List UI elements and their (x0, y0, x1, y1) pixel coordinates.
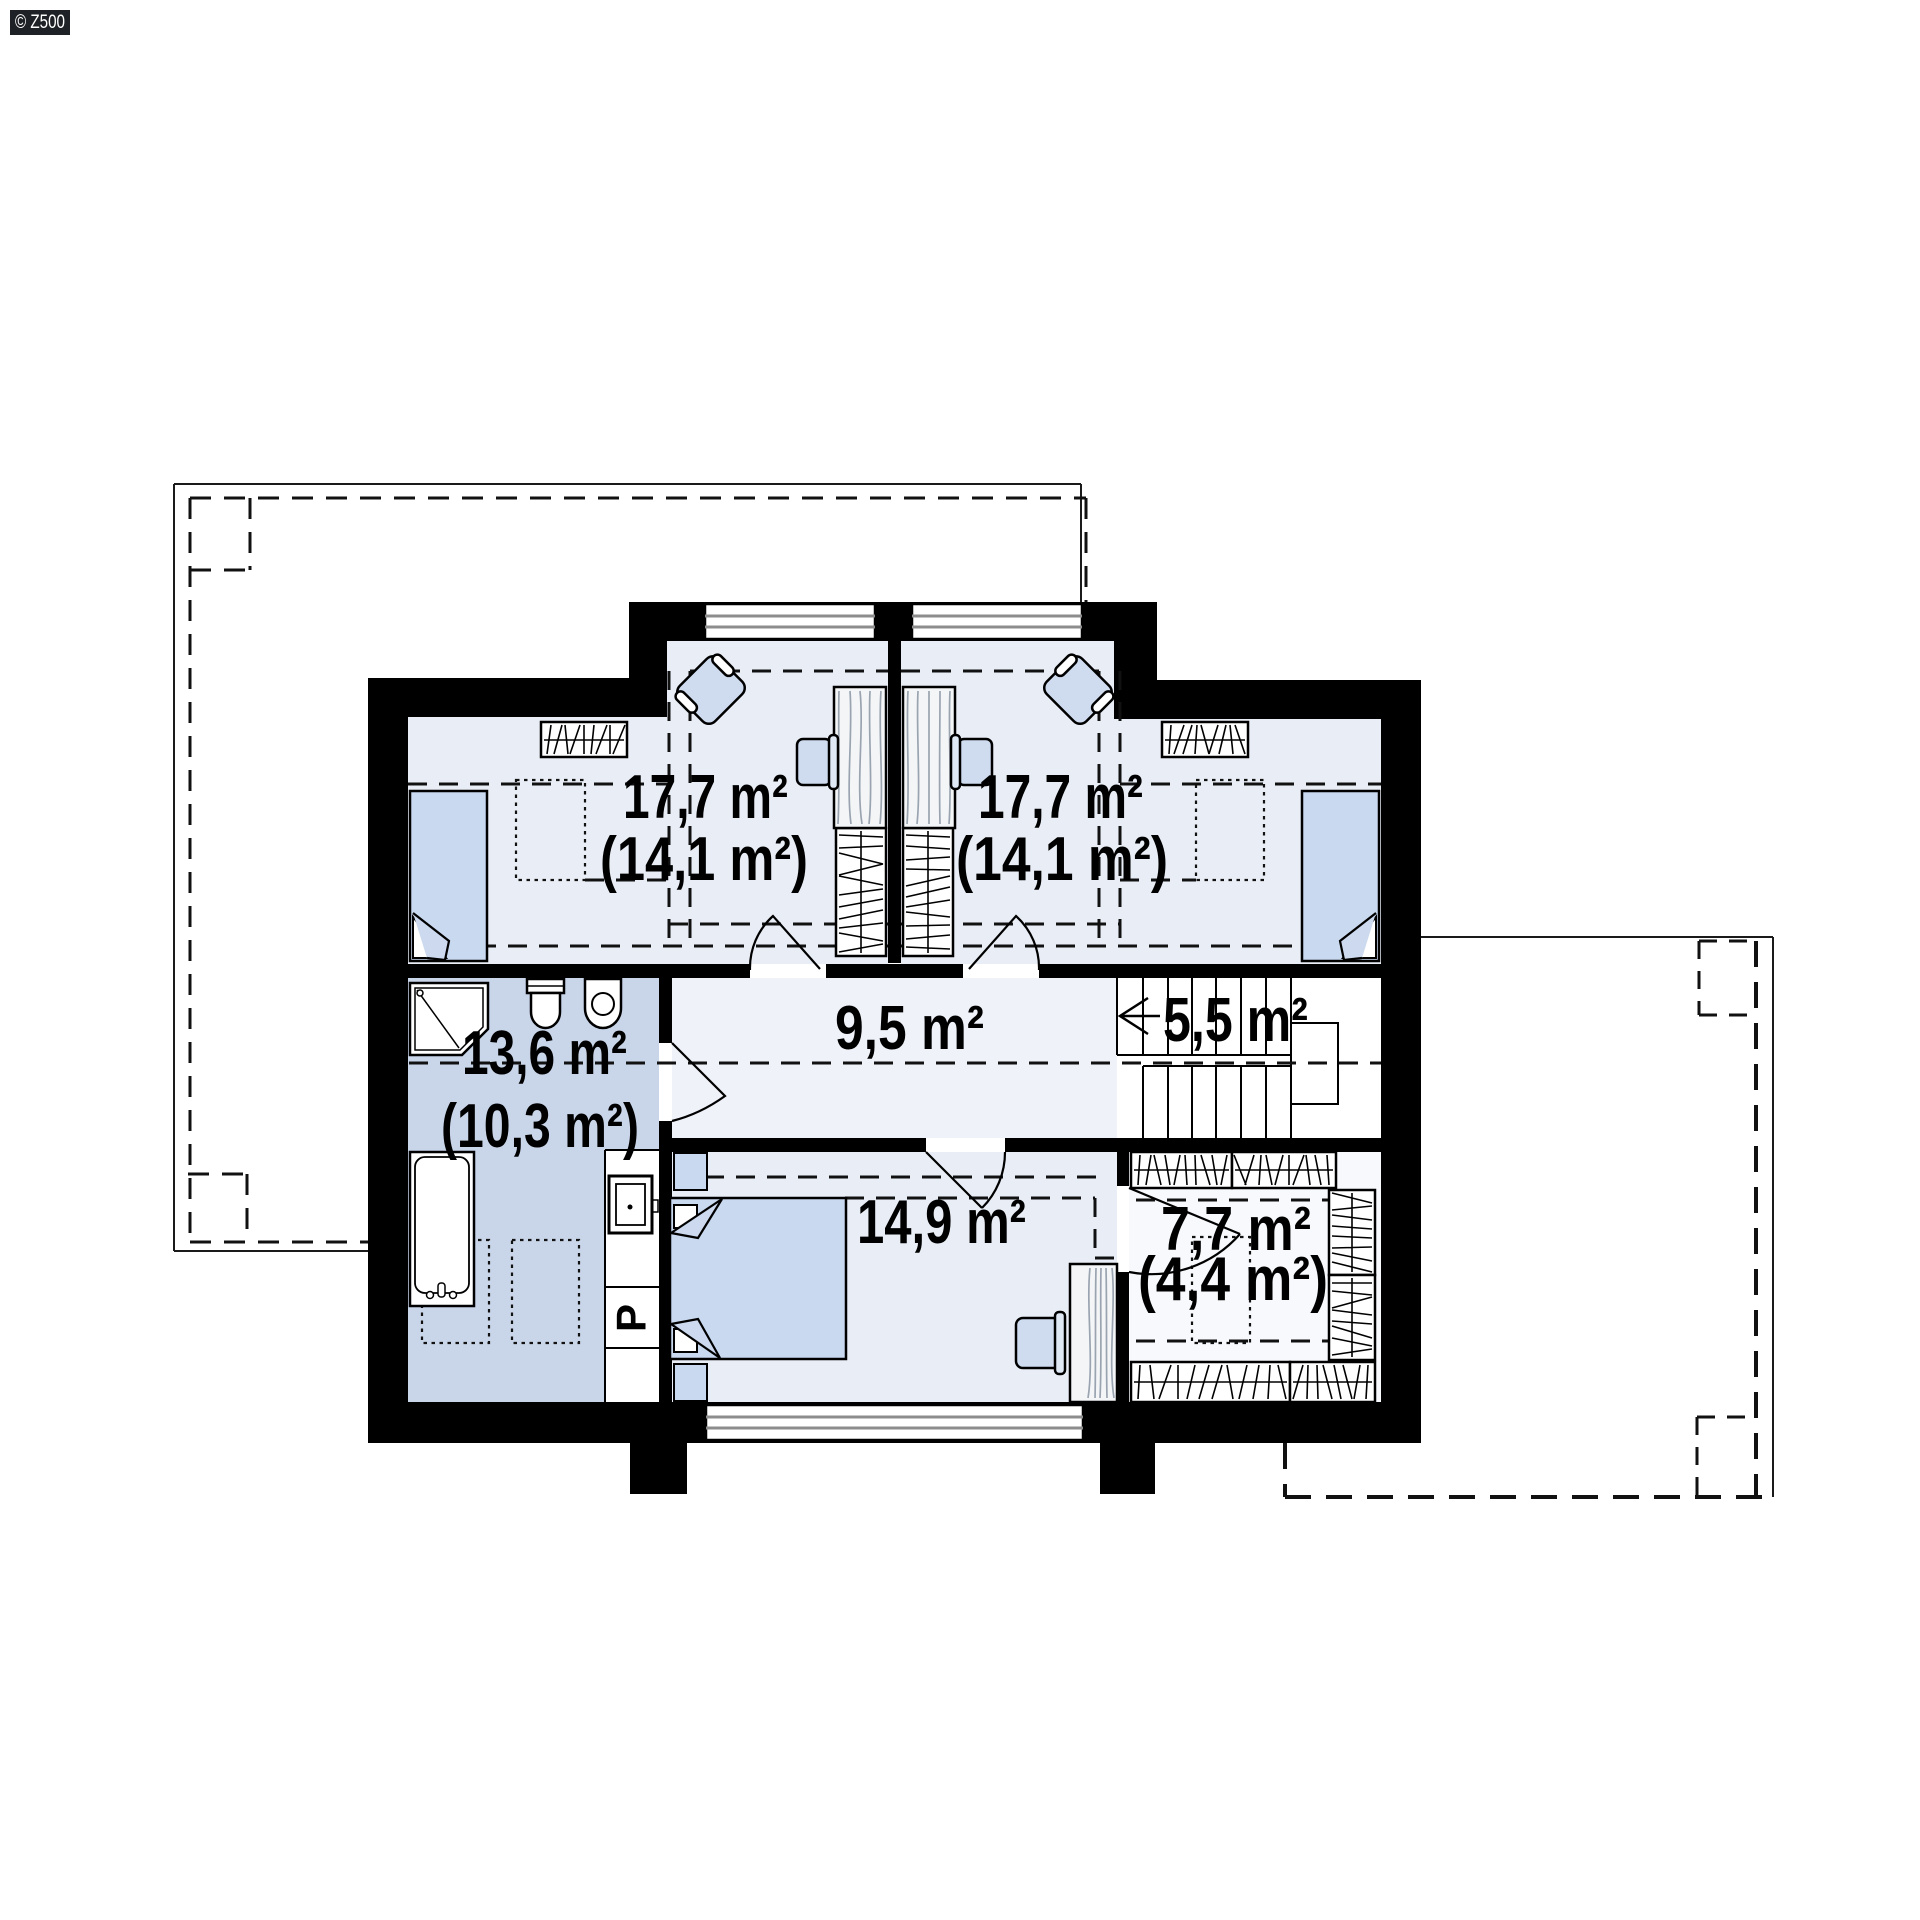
svg-text:17,7 m²: 17,7 m² (623, 763, 788, 832)
svg-text:9,5 m²: 9,5 m² (835, 994, 984, 1063)
svg-text:© Z500: © Z500 (15, 12, 65, 33)
svg-text:17,7 m²: 17,7 m² (978, 763, 1143, 832)
svg-text:(10,3 m²): (10,3 m²) (441, 1092, 639, 1161)
svg-text:(14,1 m²): (14,1 m²) (600, 825, 808, 894)
svg-text:P: P (608, 1304, 655, 1332)
svg-text:13,6 m²: 13,6 m² (462, 1019, 627, 1088)
svg-text:14,9 m²: 14,9 m² (857, 1188, 1026, 1257)
svg-text:(14,1 m²): (14,1 m²) (956, 825, 1168, 894)
svg-text:5,5 m²: 5,5 m² (1163, 986, 1308, 1055)
svg-text:(4,4 m²): (4,4 m²) (1138, 1245, 1328, 1314)
